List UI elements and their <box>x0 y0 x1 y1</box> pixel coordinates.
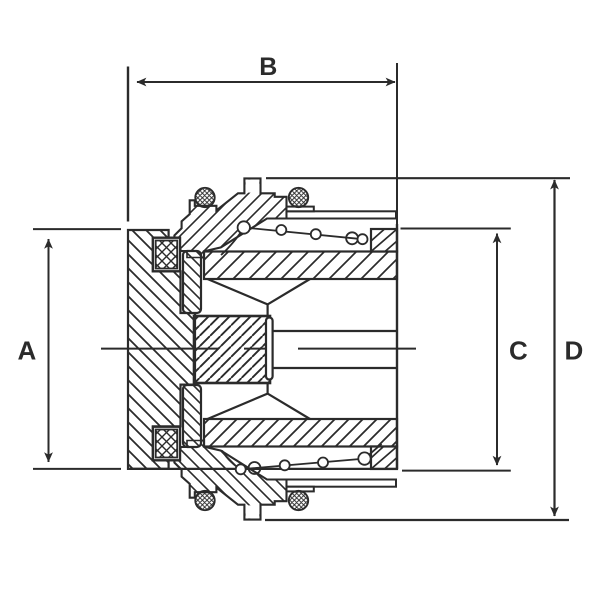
svg-text:D: D <box>565 336 584 366</box>
svg-text:C: C <box>509 336 528 366</box>
svg-text:A: A <box>18 336 37 366</box>
svg-text:B: B <box>259 53 277 81</box>
